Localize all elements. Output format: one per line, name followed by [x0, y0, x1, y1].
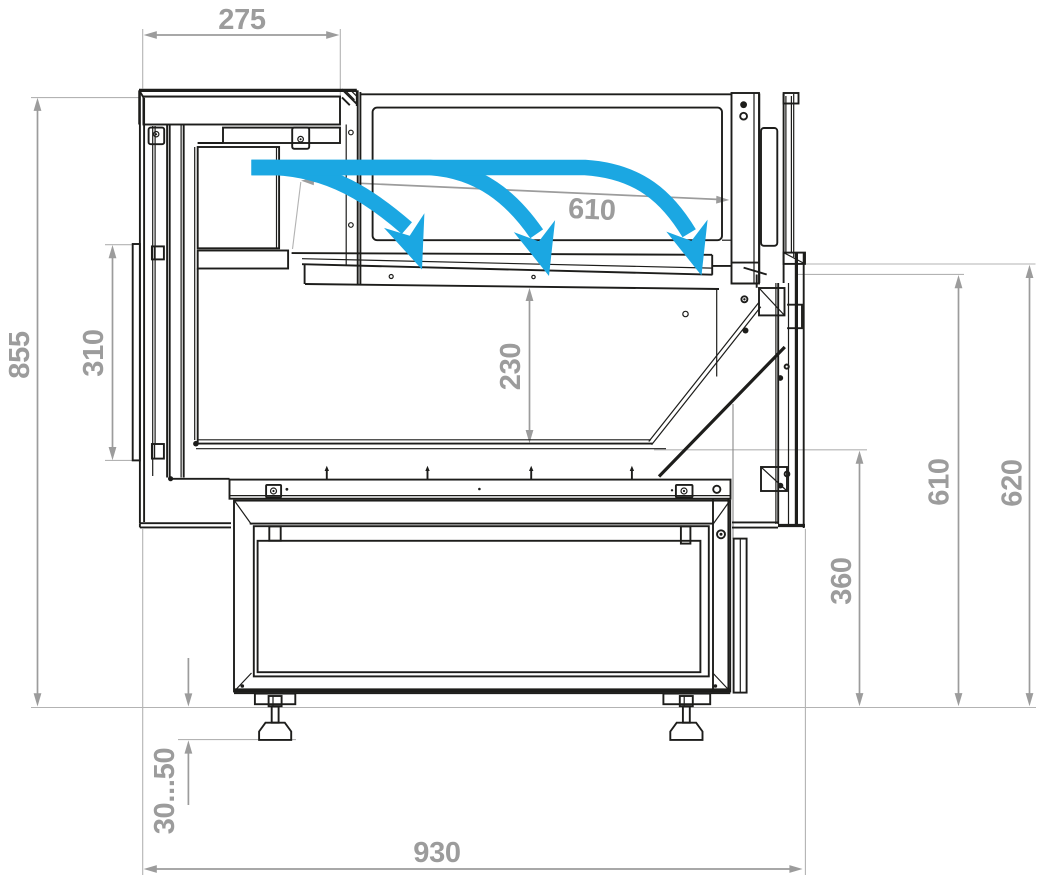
svg-text:855: 855: [4, 331, 36, 379]
svg-text:610: 610: [924, 458, 956, 506]
svg-text:620: 620: [997, 459, 1029, 507]
svg-text:230: 230: [495, 343, 527, 391]
svg-text:310: 310: [78, 329, 110, 377]
svg-text:610: 610: [567, 193, 616, 227]
svg-text:275: 275: [218, 4, 266, 36]
svg-text:930: 930: [413, 837, 461, 869]
svg-text:360: 360: [826, 557, 858, 605]
svg-text:30...50: 30...50: [149, 748, 181, 835]
